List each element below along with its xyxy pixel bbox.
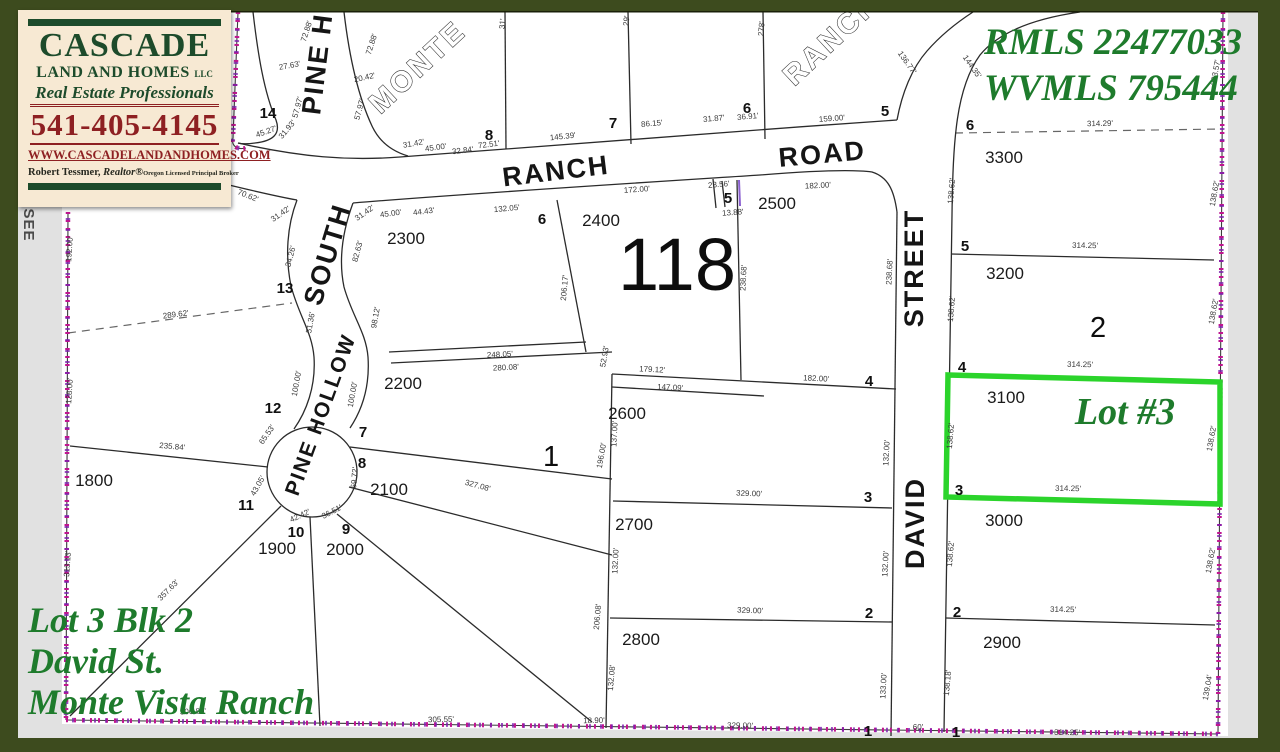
map-label-dim: 132.00' <box>881 439 891 466</box>
map-label-lot: 2 <box>865 605 873 622</box>
map-label-lot: 6 <box>966 117 974 134</box>
map-label-dim: 305.55' <box>428 715 455 724</box>
map-label-parcel: 2300 <box>387 229 425 248</box>
map-label-dim: 69.72' <box>349 466 360 489</box>
map-label-lot: 11 <box>238 497 254 514</box>
map-label-dim: 314.25' <box>1067 360 1094 369</box>
map-label-parcel: 2600 <box>608 404 646 423</box>
map-label-dim: 147.09' <box>657 382 684 392</box>
map-label-parcel: 1900 <box>258 539 296 558</box>
map-label-dim: 329.00' <box>736 489 763 499</box>
map-label-dim: 238.68' <box>884 258 894 285</box>
company-name: CASCADE <box>28 28 221 64</box>
wvmls-number: WVMLS 795444 <box>984 66 1242 112</box>
agent-name: Robert Tessmer, <box>28 167 101 178</box>
agent-line: Robert Tessmer, Realtor®Oregon Licensed … <box>28 166 221 180</box>
map-label-parcel: 2800 <box>622 630 660 649</box>
map-label-parcel: 2700 <box>615 515 653 534</box>
map-label-parcel: 3300 <box>985 148 1023 167</box>
mls-numbers: RMLS 22477033 WVMLS 795444 <box>984 20 1242 112</box>
map-label-lot: 5 <box>724 190 732 207</box>
map-label-dim: 314.25' <box>1055 484 1082 493</box>
map-label-lot: 14 <box>260 105 277 122</box>
map-label-parcel: 3200 <box>986 264 1024 283</box>
map-label-dim: 23.56' <box>708 179 731 190</box>
map-label-lot: 12 <box>265 400 282 417</box>
brokerage-logo-card: CASCADE LAND AND HOMES LLC Real Estate P… <box>18 10 231 207</box>
map-label-dim: 132.00' <box>610 547 620 574</box>
map-label-dim: 133.00' <box>878 672 888 699</box>
map-label-lot: 3 <box>864 489 872 506</box>
plat-map-screenshot: PINE HOLLOWMONTERANCHRANCHROADSOUTHPINE … <box>0 0 1280 752</box>
map-label-dim: 179.12' <box>639 364 666 374</box>
map-label-lot: 7 <box>609 115 617 132</box>
caption-lot-block: Lot 3 Blk 2 <box>28 600 314 641</box>
map-label-dim: 278' <box>756 21 766 37</box>
map-label-dim: 137.00' <box>609 420 619 447</box>
map-label-lot: 3 <box>955 482 963 499</box>
rmls-number: RMLS 22477033 <box>984 20 1242 66</box>
company-suffix: LLC <box>194 69 213 79</box>
map-label-street: STREET <box>899 209 929 328</box>
company-tagline: Real Estate Professionals <box>28 83 221 102</box>
map-label-dim: 182.00' <box>805 180 832 190</box>
map-label-street: DAVID <box>900 477 930 569</box>
map-label-parcel: 2400 <box>582 211 620 230</box>
highlighted-lot-label: Lot #3 <box>1040 390 1210 434</box>
map-label-dim: 86.15' <box>641 118 664 129</box>
map-label-dim: 314.25' <box>1050 605 1077 614</box>
map-label-parcel: 3100 <box>987 388 1025 407</box>
divider <box>30 143 219 145</box>
map-label-note: SEE <box>20 208 37 241</box>
map-label-sec: 118 <box>618 223 736 306</box>
caption-street: David St. <box>28 641 314 682</box>
phone-number: 541-405-4145 <box>28 107 221 143</box>
map-label-lot: 5 <box>961 238 969 255</box>
map-label-dim: 280.08' <box>493 362 520 372</box>
map-label-lot: 6 <box>538 211 546 228</box>
map-label-dim: 314.25' <box>1054 728 1081 737</box>
map-label-blk: 2 <box>1090 312 1106 344</box>
website-url: WWW.CASCADELANDANDHOMES.COM <box>28 147 221 163</box>
map-label-dim: 329.00' <box>727 721 754 730</box>
map-label-dim: 132.00' <box>880 550 890 577</box>
map-label-lot: 1 <box>864 723 872 740</box>
company-subtitle: LAND AND HOMES LLC <box>28 64 221 83</box>
map-label-parcel: 2500 <box>758 194 796 213</box>
map-label-dim: 192.00' <box>64 235 75 262</box>
violet-segment <box>739 180 740 206</box>
map-label-lot: 5 <box>881 103 889 120</box>
map-label-parcel: 2100 <box>370 480 408 499</box>
map-label-dim: 128.00' <box>64 377 75 404</box>
map-label-lot: 13 <box>277 280 294 297</box>
logo-bottom-bar <box>28 183 221 190</box>
map-label-dim: 159.00' <box>819 113 846 124</box>
map-label-parcel: 2200 <box>384 374 422 393</box>
map-label-lot: 4 <box>958 359 967 376</box>
agent-license: Oregon Licensed Principal Broker <box>143 170 239 177</box>
map-label-dim: 18.90' <box>583 716 605 725</box>
map-label-dim: 329.00' <box>737 606 764 616</box>
map-label-lot: 2 <box>953 604 961 621</box>
agent-designation: Realtor® <box>103 167 143 178</box>
map-label-dim: 60' <box>913 723 924 732</box>
map-label-parcel: 3000 <box>985 511 1023 530</box>
map-label-dim: 13.88' <box>722 207 745 218</box>
map-label-dim: 36.91' <box>737 111 760 122</box>
listing-caption: Lot 3 Blk 2 David St. Monte Vista Ranch <box>28 600 314 723</box>
map-label-dim: 182.00' <box>803 373 830 383</box>
map-label-parcel: 1800 <box>75 471 113 490</box>
map-label-parcel: 2000 <box>326 540 364 559</box>
map-label-blk: 1 <box>543 441 559 473</box>
map-label-dim: 314.29' <box>1087 119 1114 128</box>
map-label-dim: 248.05' <box>487 349 514 359</box>
map-label-dim: 29' <box>622 15 632 27</box>
map-label-parcel: 2900 <box>983 633 1021 652</box>
map-label-dim: 238.68' <box>738 264 748 291</box>
map-label-dim: 31.87' <box>703 113 726 124</box>
map-label-lot: 4 <box>865 373 874 390</box>
map-label-lot: 9 <box>342 521 350 538</box>
caption-subdivision: Monte Vista Ranch <box>28 682 314 723</box>
map-label-dim: 313.13' <box>62 550 73 577</box>
logo-top-bar <box>28 19 221 26</box>
map-label-dim: 172.00' <box>624 184 651 195</box>
map-label-dim: 314.25' <box>1072 241 1099 250</box>
map-label-dim: 31' <box>498 18 508 30</box>
map-label-lot: 7 <box>359 424 367 441</box>
